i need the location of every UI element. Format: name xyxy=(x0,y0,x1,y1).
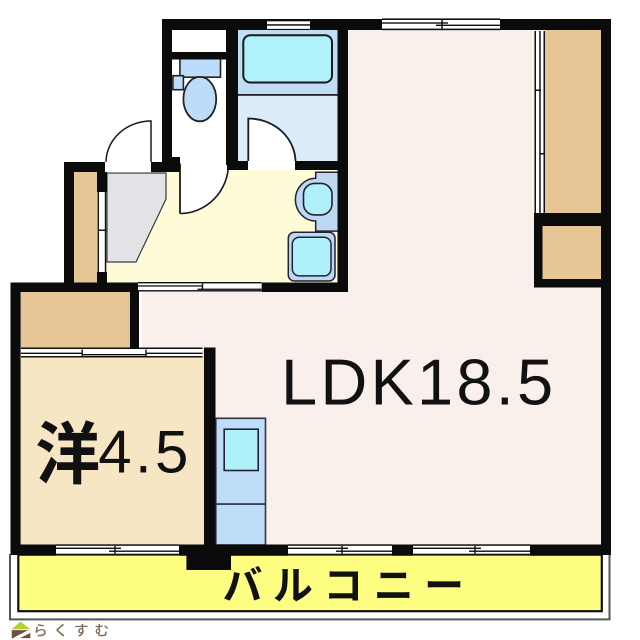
svg-text:4.5: 4.5 xyxy=(98,418,192,485)
svg-text:LDK18.5: LDK18.5 xyxy=(281,346,556,419)
